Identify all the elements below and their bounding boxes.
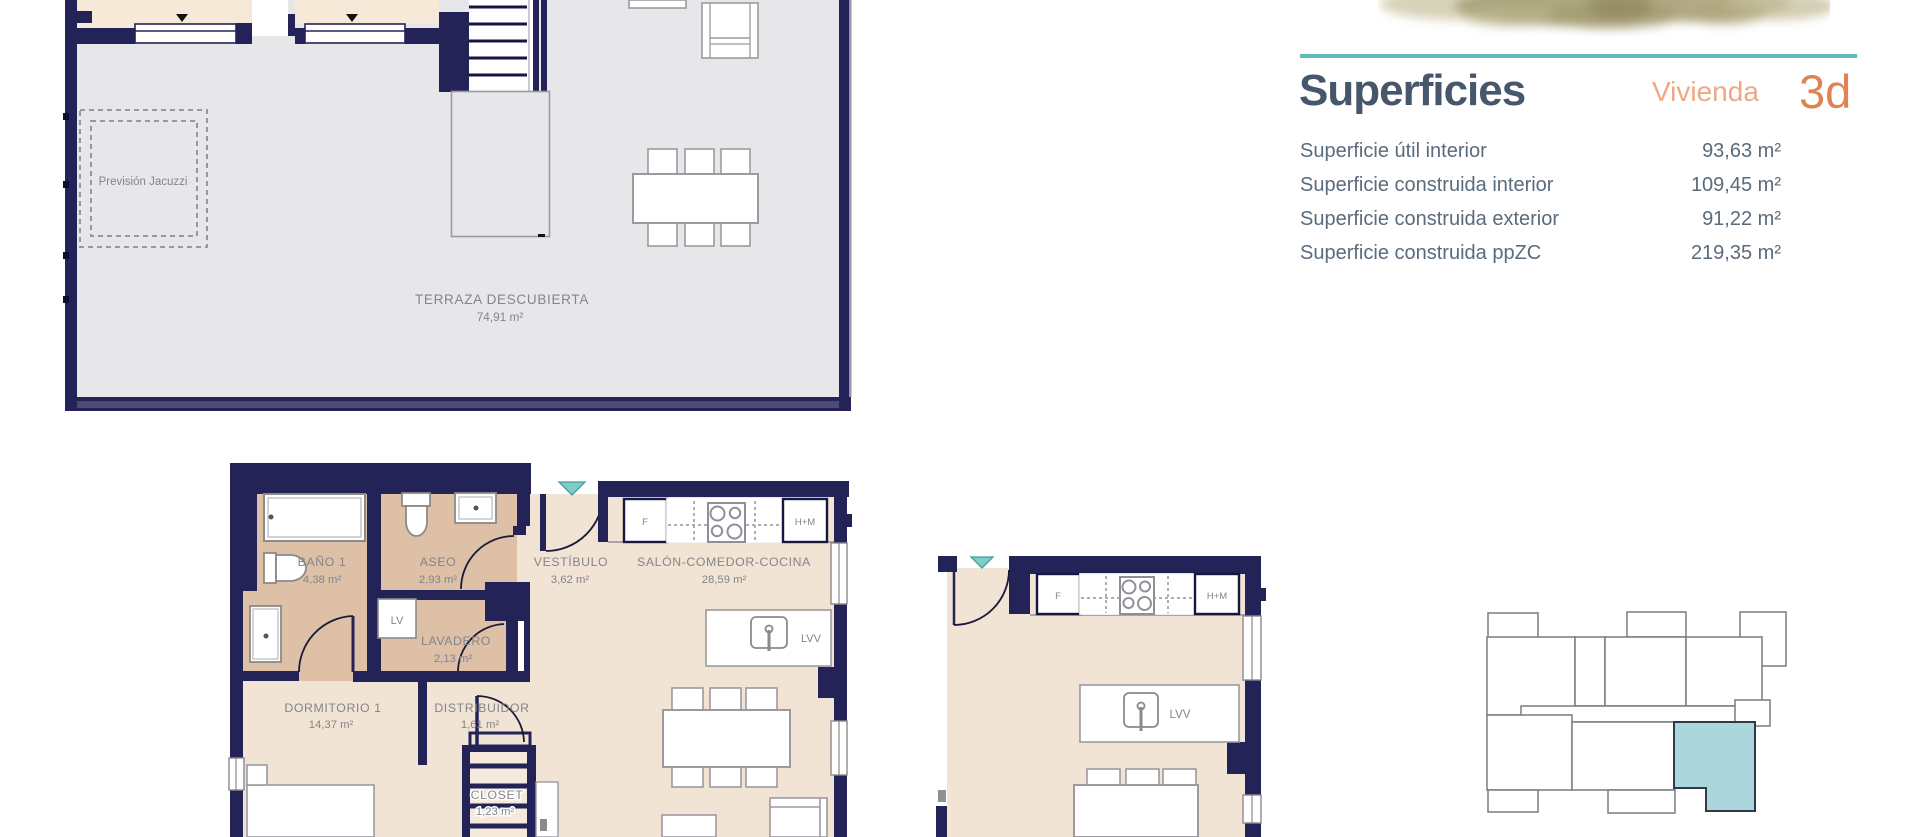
svg-text:1,61 m²: 1,61 m² xyxy=(461,719,500,731)
svg-text:3,62 m²: 3,62 m² xyxy=(551,574,590,586)
svg-text:TERRAZA DESCUBIERTA: TERRAZA DESCUBIERTA xyxy=(415,292,589,307)
svg-text:F: F xyxy=(1055,591,1061,602)
svg-text:LAVADERO: LAVADERO xyxy=(421,634,491,648)
svg-text:2,93 m²: 2,93 m² xyxy=(419,574,458,586)
svg-text:2,13 m²: 2,13 m² xyxy=(434,653,473,665)
svg-text:H+M: H+M xyxy=(1207,591,1227,602)
svg-text:LV: LV xyxy=(391,615,404,627)
svg-text:H+M: H+M xyxy=(795,517,815,528)
svg-text:ASEO: ASEO xyxy=(420,555,457,569)
svg-text:14,37 m²: 14,37 m² xyxy=(309,719,354,731)
svg-text:SALÓN-COMEDOR-COCINA: SALÓN-COMEDOR-COCINA xyxy=(637,554,811,569)
svg-text:DORMITORIO 1: DORMITORIO 1 xyxy=(284,701,381,715)
svg-text:BAÑO 1: BAÑO 1 xyxy=(298,555,347,569)
svg-text:Previsión Jacuzzi: Previsión Jacuzzi xyxy=(99,176,188,188)
svg-text:4,38 m²: 4,38 m² xyxy=(303,574,342,586)
svg-text:1,23 m²: 1,23 m² xyxy=(476,806,515,818)
svg-text:28,59 m²: 28,59 m² xyxy=(702,574,747,586)
svg-text:CLOSET: CLOSET xyxy=(471,788,524,802)
svg-text:74,91 m²: 74,91 m² xyxy=(477,310,524,324)
svg-text:F: F xyxy=(642,517,648,528)
svg-text:VESTÍBULO: VESTÍBULO xyxy=(534,554,608,569)
svg-text:LVV: LVV xyxy=(801,633,822,645)
svg-text:DISTRIBUIDOR: DISTRIBUIDOR xyxy=(434,701,529,715)
svg-text:LVV: LVV xyxy=(1170,709,1191,721)
